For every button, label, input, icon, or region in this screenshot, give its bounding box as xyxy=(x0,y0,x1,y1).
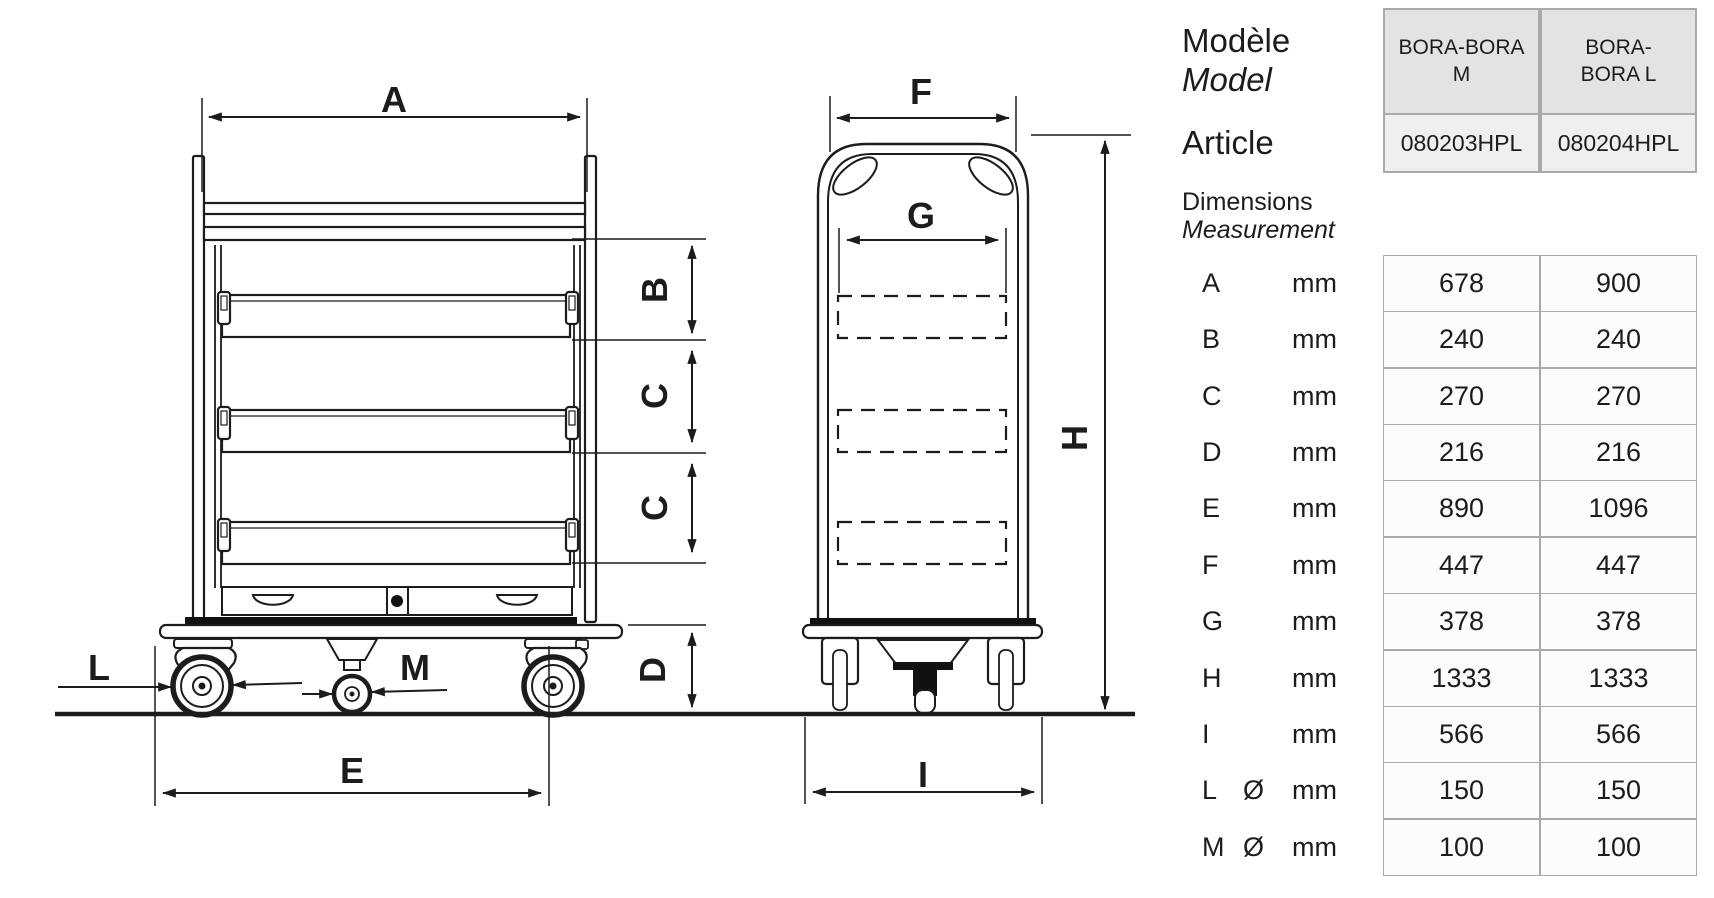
front-top-bar xyxy=(204,203,585,214)
front-second-bar xyxy=(204,227,585,240)
side-left-wheel xyxy=(822,638,858,710)
unit-label: mm xyxy=(1292,593,1337,650)
corner-gusset-left xyxy=(827,151,883,202)
unit-label: mm xyxy=(1292,650,1337,707)
label-C-upper: C xyxy=(634,383,675,409)
side-platform xyxy=(803,625,1042,638)
dimensions-label-en: Measurement xyxy=(1182,216,1335,245)
technical-sheet: A B C C D E L M F G H I Modèle Model Art… xyxy=(0,0,1714,898)
dimension-letter: F xyxy=(1202,537,1219,594)
label-B: B xyxy=(634,277,675,303)
front-right-post xyxy=(585,156,596,622)
value-cell-bora-m: 216 xyxy=(1383,424,1540,481)
value-cell-bora-m: 678 xyxy=(1383,255,1540,312)
value-cell-bora-l: 150 xyxy=(1540,762,1697,819)
label-A: A xyxy=(381,79,407,120)
dimension-letter: D xyxy=(1202,424,1222,481)
value-cell-bora-l: 270 xyxy=(1540,368,1697,425)
unit-label: mm xyxy=(1292,368,1337,425)
dimension-row: H mm 1333 1333 xyxy=(1195,650,1700,707)
dimension-row: A mm 678 900 xyxy=(1195,255,1700,312)
model-l-line1: BORA- xyxy=(1585,36,1652,59)
model-label-fr: Modèle xyxy=(1182,22,1290,60)
front-view xyxy=(160,156,622,715)
model-m-line1: BORA-BORA xyxy=(1398,36,1524,59)
value-cell-bora-m: 566 xyxy=(1383,706,1540,763)
value-cell-bora-l: 216 xyxy=(1540,424,1697,481)
article-label: Article xyxy=(1182,124,1274,162)
value-cell-bora-m: 150 xyxy=(1383,762,1540,819)
label-L: L xyxy=(88,647,110,688)
value-cell-bora-m: 270 xyxy=(1383,368,1540,425)
corner-gusset-right xyxy=(963,151,1019,202)
value-cell-bora-l: 378 xyxy=(1540,593,1697,650)
label-C-lower: C xyxy=(634,495,675,521)
hidden-shelves xyxy=(838,296,1006,564)
dimension-letter: L xyxy=(1202,762,1217,819)
value-cell-bora-l: 1096 xyxy=(1540,480,1697,537)
value-cell-bora-m: 240 xyxy=(1383,311,1540,368)
diameter-symbol: Ø xyxy=(1243,819,1264,876)
dimension-row: E mm 890 1096 xyxy=(1195,480,1700,537)
value-cell-bora-m: 1333 xyxy=(1383,650,1540,707)
dimension-letter: I xyxy=(1202,706,1210,763)
dimension-letter: H xyxy=(1202,650,1222,707)
unit-label: mm xyxy=(1292,311,1337,368)
dim-arrow-L-right xyxy=(233,683,302,685)
dimension-row: C mm 270 270 xyxy=(1195,368,1700,425)
label-I: I xyxy=(918,754,928,795)
diameter-symbol: Ø xyxy=(1243,762,1264,819)
label-G: G xyxy=(907,195,935,236)
front-right-caster xyxy=(524,639,588,715)
value-cell-bora-l: 240 xyxy=(1540,311,1697,368)
front-shelf-3 xyxy=(218,519,578,564)
value-cell-bora-l: 100 xyxy=(1540,819,1697,876)
front-shelf-1 xyxy=(218,292,578,337)
front-shelf-2 xyxy=(218,407,578,452)
value-cell-bora-l: 1333 xyxy=(1540,650,1697,707)
front-center-caster xyxy=(327,639,377,712)
label-F: F xyxy=(910,71,932,112)
dimension-row: G mm 378 378 xyxy=(1195,593,1700,650)
dimension-row: D mm 216 216 xyxy=(1195,424,1700,481)
model-header-bora-m: BORA-BORA M xyxy=(1383,8,1540,115)
dimension-row: L Ø mm 150 150 xyxy=(1195,762,1700,819)
front-bottom-tray xyxy=(222,587,572,615)
dimension-letter: A xyxy=(1202,255,1220,312)
label-H: H xyxy=(1054,425,1095,451)
unit-label: mm xyxy=(1292,706,1337,763)
model-l-line2: BORA L xyxy=(1581,63,1657,86)
unit-label: mm xyxy=(1292,255,1337,312)
value-cell-bora-m: 378 xyxy=(1383,593,1540,650)
dimension-letter: C xyxy=(1202,368,1222,425)
dimension-letter: G xyxy=(1202,593,1223,650)
unit-label: mm xyxy=(1292,762,1337,819)
value-cell-bora-m: 447 xyxy=(1383,537,1540,594)
side-center-caster xyxy=(878,640,968,713)
model-label-en: Model xyxy=(1182,61,1272,99)
front-left-post xyxy=(193,156,204,622)
value-cell-bora-m: 890 xyxy=(1383,480,1540,537)
dimension-letter: E xyxy=(1202,480,1220,537)
model-header-bora-l: BORA- BORA L xyxy=(1540,8,1697,115)
dimension-row: F mm 447 447 xyxy=(1195,537,1700,594)
unit-label: mm xyxy=(1292,819,1337,876)
unit-label: mm xyxy=(1292,424,1337,481)
front-bumper xyxy=(185,617,577,624)
side-right-wheel xyxy=(988,638,1024,710)
article-cell-l: 080204HPL xyxy=(1540,115,1697,173)
dimensions-label-fr: Dimensions xyxy=(1182,188,1313,217)
unit-label: mm xyxy=(1292,480,1337,537)
lock-dot xyxy=(391,595,403,607)
model-m-line2: M xyxy=(1453,63,1471,86)
dimension-row: B mm 240 240 xyxy=(1195,311,1700,368)
unit-label: mm xyxy=(1292,537,1337,594)
article-cell-m: 080203HPL xyxy=(1383,115,1540,173)
value-cell-bora-m: 100 xyxy=(1383,819,1540,876)
front-left-caster xyxy=(173,639,236,715)
value-cell-bora-l: 900 xyxy=(1540,255,1697,312)
label-M: M xyxy=(400,647,430,688)
front-platform xyxy=(160,625,622,638)
dimension-row: I mm 566 566 xyxy=(1195,706,1700,763)
dimension-letter: B xyxy=(1202,311,1220,368)
cart-technical-drawing: A B C C D E L M F G H I xyxy=(0,0,1160,898)
value-cell-bora-l: 447 xyxy=(1540,537,1697,594)
dimension-letter: M xyxy=(1202,819,1225,876)
dimension-row: M Ø mm 100 100 xyxy=(1195,819,1700,876)
value-cell-bora-l: 566 xyxy=(1540,706,1697,763)
label-D: D xyxy=(632,657,673,683)
dim-arrow-M-right xyxy=(372,690,447,692)
label-E: E xyxy=(340,750,364,791)
